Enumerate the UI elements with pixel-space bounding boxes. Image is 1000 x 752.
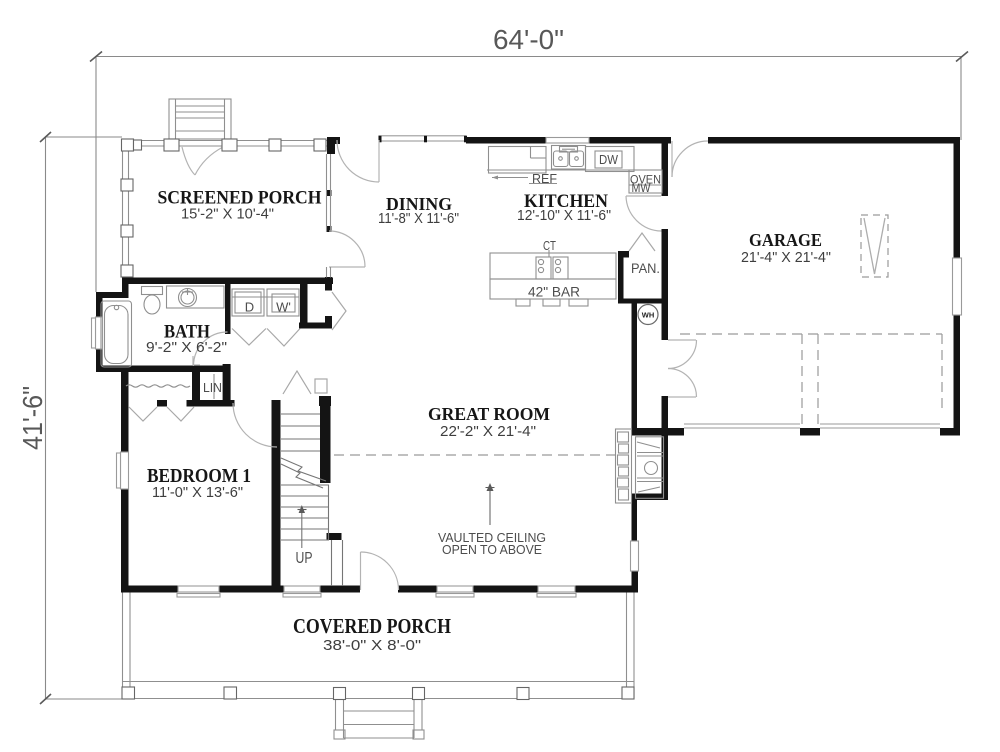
svg-text:GARAGE: GARAGE [749,230,822,250]
svg-text:UP: UP [296,550,313,567]
svg-text:64'-0": 64'-0" [493,24,564,55]
svg-text:11'-8" X 11'-6": 11'-8" X 11'-6" [378,211,459,227]
svg-text:12'-10" X 11'-6": 12'-10" X 11'-6" [517,208,611,224]
svg-text:OPEN TO ABOVE: OPEN TO ABOVE [442,543,542,557]
svg-text:11'-0" X 13'-6": 11'-0" X 13'-6" [152,485,243,501]
svg-text:22'-2" X 21'-4": 22'-2" X 21'-4" [440,424,536,440]
svg-text:15'-2" X 10'-4": 15'-2" X 10'-4" [181,207,274,223]
svg-text:GREAT ROOM: GREAT ROOM [428,404,550,424]
svg-text:PAN.: PAN. [631,261,660,276]
svg-text:42" BAR: 42" BAR [528,285,580,300]
svg-text:41'-6": 41'-6" [17,386,48,450]
svg-text:WH: WH [642,311,655,320]
svg-text:21'-4" X 21'-4": 21'-4" X 21'-4" [741,250,831,266]
svg-text:38'-0" X 8'-0": 38'-0" X 8'-0" [323,637,421,654]
svg-text:REF: REF [532,171,557,186]
svg-text:9'-2" X 6'-2": 9'-2" X 6'-2" [146,340,227,356]
svg-text:DW: DW [599,152,619,167]
svg-text:BEDROOM 1: BEDROOM 1 [147,465,251,487]
svg-text:LIN: LIN [203,380,222,395]
svg-text:COVERED PORCH: COVERED PORCH [293,614,451,638]
svg-text:CT: CT [543,238,556,253]
svg-text:D: D [245,300,254,315]
svg-text:MW: MW [632,183,651,195]
svg-text:W': W' [276,300,291,315]
svg-text:SCREENED PORCH: SCREENED PORCH [158,189,323,209]
